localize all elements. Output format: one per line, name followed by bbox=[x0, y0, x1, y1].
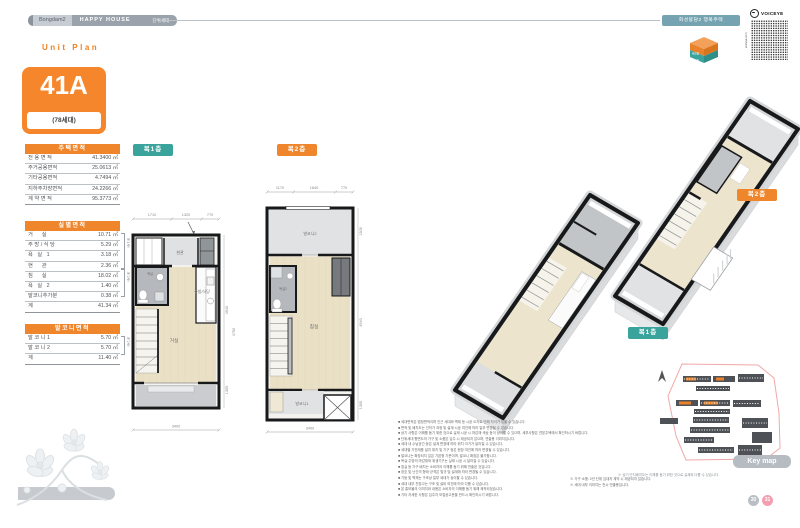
render-floor2 bbox=[560, 58, 800, 358]
plan2-room-bedroom: 침실 bbox=[310, 323, 319, 330]
plan2-room-balcony1: 발코니1 bbox=[295, 400, 309, 406]
unit-type-box: 41A (78세대) bbox=[22, 67, 106, 134]
rooms-bracket-floor2 bbox=[121, 269, 125, 297]
room-area-table: 실별면적 거 실10.71 ㎡ 주 방 / 식 당5.29 ㎡ 욕 실 13.1… bbox=[25, 221, 120, 313]
cooktop-icon bbox=[207, 277, 214, 285]
plan1-room-living: 거실 bbox=[170, 337, 179, 344]
room-area-title: 실별면적 bbox=[25, 221, 120, 231]
balcony-area-table: 발코니면적 발 코 니 15.70 ㎡ 발 코 니 25.70 ㎡ 계11.40… bbox=[25, 324, 120, 365]
floorplan-floor1: 1710 1320 770 현관 욕실 주방/식당 거실 3400 4940 4… bbox=[128, 205, 255, 445]
sink-icon bbox=[287, 273, 293, 279]
housing-area-title: 주택면적 bbox=[25, 144, 120, 154]
plan1-dim-right-3: 1305 bbox=[225, 386, 229, 394]
table-row: 계41.34 ㎡ bbox=[25, 302, 120, 312]
table-row: 거 실10.71 ㎡ bbox=[25, 231, 120, 241]
render1-floor-badge: 복1층 bbox=[628, 327, 668, 339]
table-row: 계 약 면 적95.3773 ㎡ bbox=[25, 195, 120, 205]
table-row: 침 실18.02 ㎡ bbox=[25, 272, 120, 282]
plan1-dim-top-1: 1710 bbox=[148, 213, 156, 217]
render2-floor-badge: 복2층 bbox=[737, 189, 777, 201]
plan2-dim-top-1: 1170 bbox=[276, 186, 284, 190]
page-dot-prev[interactable]: 30 bbox=[748, 495, 759, 506]
plan1-dim-right-1: 4940 bbox=[225, 306, 229, 314]
plan1-room-kitchen: 주방/식당 bbox=[194, 288, 210, 294]
voiceye-barcode-icon bbox=[751, 20, 788, 60]
plan2-dim-top-3: 770 bbox=[341, 186, 347, 190]
voiceye-code: VOICEYE voiceye.com bbox=[744, 8, 790, 62]
notes-block-right: ※ 가구·소품: 2년 단위 임대차 계약 시 제공되지 않습니다. ※ 세대 … bbox=[570, 477, 750, 488]
shower-icon bbox=[271, 267, 282, 278]
kitchen-sink-icon bbox=[208, 298, 214, 304]
voiceye-label: VOICEYE bbox=[761, 11, 784, 16]
table-row: 주 방 / 식 당5.29 ㎡ bbox=[25, 241, 120, 251]
plan2-floor-badge: 복2층 bbox=[277, 144, 317, 156]
table-row: 전 용 면 적41.3400 ㎡ bbox=[25, 154, 120, 164]
unit-households: (78세대) bbox=[27, 112, 101, 129]
toilet-icon bbox=[139, 290, 147, 300]
plan2-dim-top-2: 1840 bbox=[310, 186, 318, 190]
plan1-dim-top-2: 1320 bbox=[182, 213, 190, 217]
refrigerator bbox=[200, 238, 214, 265]
header-brand-pill: Bongdam2 HAPPY HOUSE 단위세대 bbox=[28, 15, 177, 26]
note-line: ■ 기타 자세한 사항은 입주자 모집공고문을 반드시 확인하시기 바랍니다. bbox=[398, 493, 666, 499]
section-title: Unit Plan bbox=[42, 43, 99, 52]
plan1-dim-bottom: 3400 bbox=[172, 425, 180, 429]
balcony-area-title: 발코니면적 bbox=[25, 324, 120, 334]
north-arrow-icon bbox=[658, 370, 666, 382]
balcony2-window bbox=[286, 207, 330, 210]
table-row: 욕 실 21.40 ㎡ bbox=[25, 282, 120, 292]
plan1-dim-top-3: 770 bbox=[207, 213, 213, 217]
table-row: 계11.40 ㎡ bbox=[25, 354, 120, 364]
storage-closet bbox=[136, 238, 162, 265]
plan1-room-entrance: 현관 bbox=[176, 249, 184, 255]
plan2-dim-right-1: 1305 bbox=[359, 227, 363, 235]
toilet-icon bbox=[273, 299, 281, 309]
plan2-dim-right-3: 1305 bbox=[359, 401, 363, 409]
plan1-room-bath: 욕실 bbox=[147, 271, 153, 276]
brand-prefix: Bongdam2 bbox=[33, 15, 72, 26]
page-dot-next[interactable]: 31 bbox=[762, 495, 773, 506]
keymap-label: Key map bbox=[733, 455, 791, 468]
plan2-dim-bottom: 3400 bbox=[306, 427, 314, 431]
stair-handrail bbox=[288, 318, 292, 374]
shower-icon bbox=[155, 292, 164, 301]
table-row: 발코니추가분0.38 ㎡ bbox=[25, 292, 120, 302]
flower-ornament-icon bbox=[12, 410, 117, 508]
table-row: 지하주차장면적24.2266 ㎡ bbox=[25, 185, 120, 195]
table-row: 욕 실 13.18 ㎡ bbox=[25, 251, 120, 261]
cube-top-label: 복2층 bbox=[692, 51, 699, 56]
project-badge: 화성봉담2 행복주택 bbox=[662, 15, 740, 26]
keymap-caption: ※ 상기 단지배치도는 이해를 돕기 위한 것으로 실제와 다를 수 있습니다. bbox=[618, 472, 719, 477]
porch-step bbox=[148, 386, 194, 392]
plan2-room-balcony2: 발코니2 bbox=[303, 230, 317, 236]
table-row: 현 관2.36 ㎡ bbox=[25, 262, 120, 272]
table-row: 발 코 니 15.70 ㎡ bbox=[25, 334, 120, 344]
balcony-bracket bbox=[121, 336, 125, 355]
plan1-floor-badge: 복1층 bbox=[133, 144, 173, 156]
brand-main: HAPPY HOUSE bbox=[72, 15, 139, 26]
plan2-room-bath2: 욕실2 bbox=[279, 286, 287, 291]
voiceye-logo-icon bbox=[750, 9, 759, 18]
utility-box bbox=[270, 392, 283, 412]
rooms-bracket-floor1 bbox=[121, 233, 125, 269]
sink-icon bbox=[157, 274, 164, 281]
floorplan-floor2: 1170 1840 770 발코니2 욕실2 침실 발코니1 3400 1305… bbox=[262, 178, 389, 440]
housing-area-table: 주택면적 전 용 면 적41.3400 ㎡ 주거공용면적25.0613 ㎡ 기타… bbox=[25, 144, 120, 205]
plan2-dim-right-2: 4940 bbox=[359, 318, 363, 326]
voiceye-side-label: voiceye.com bbox=[744, 20, 750, 60]
table-row: 기타공용면적4.7494 ㎡ bbox=[25, 174, 120, 184]
unit-code: 41A bbox=[22, 70, 106, 101]
page-indicator: 30 31 bbox=[748, 495, 773, 506]
plan1-dim-right-2: 4750 bbox=[232, 328, 236, 336]
note-line: ※ 세대 내부 이미지는 전시·연출용입니다. bbox=[570, 483, 750, 489]
table-row: 발 코 니 25.70 ㎡ bbox=[25, 344, 120, 354]
header-rule bbox=[166, 20, 660, 21]
table-row: 주거공용면적25.0613 ㎡ bbox=[25, 164, 120, 174]
